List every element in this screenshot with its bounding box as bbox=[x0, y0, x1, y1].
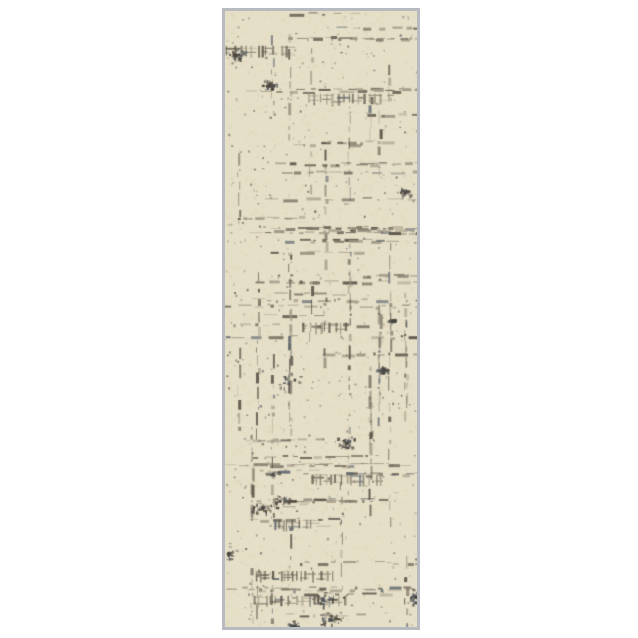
product-photo-stage bbox=[0, 0, 638, 638]
runner-rug-image bbox=[222, 8, 420, 630]
rug-pattern-canvas bbox=[225, 11, 417, 627]
